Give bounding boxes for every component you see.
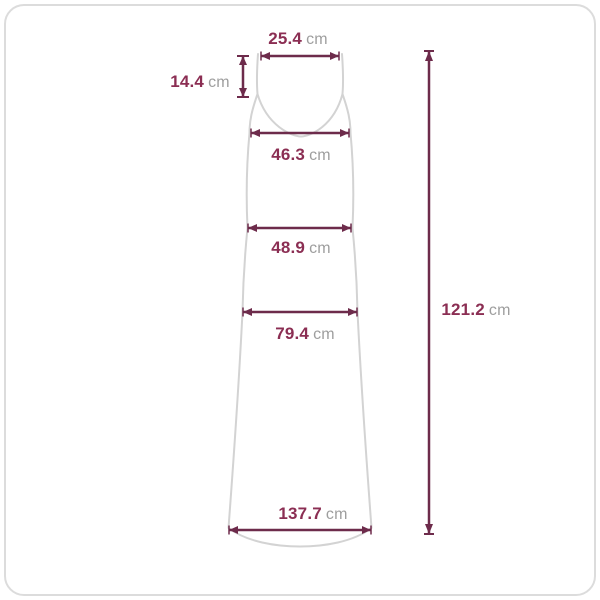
v-neckline xyxy=(258,94,343,137)
hip-width-unit: cm xyxy=(313,326,335,343)
strap-length-label: 14.4cm xyxy=(170,73,230,91)
left-strap xyxy=(257,54,258,94)
garment-outline xyxy=(229,54,372,547)
bust-width-unit: cm xyxy=(309,147,331,164)
bust-width-label: 46.3cm xyxy=(271,146,331,164)
total-length-label: 121.2cm xyxy=(441,301,510,319)
top-width-value: 25.4 xyxy=(268,29,302,48)
waist-width-label: 48.9cm xyxy=(271,239,331,257)
hem-measure-line xyxy=(229,526,371,535)
hem-width-label: 137.7cm xyxy=(278,505,347,523)
hip-width-label: 79.4cm xyxy=(275,325,335,343)
waist-measure-line xyxy=(248,224,351,233)
right-strap xyxy=(342,54,343,94)
hip-width-value: 79.4 xyxy=(275,324,309,343)
hip-measure-line xyxy=(243,308,357,317)
waist-width-value: 48.9 xyxy=(271,238,305,257)
strap-length-unit: cm xyxy=(208,74,230,91)
total-length-measure-line xyxy=(424,51,434,534)
top-width-measure-line xyxy=(261,52,339,61)
dress-measurement-diagram: 25.4cm 14.4cm 46.3cm 48.9cm 79.4cm 137.7… xyxy=(0,0,600,600)
hem-width-unit: cm xyxy=(326,506,348,523)
top-width-label: 25.4cm xyxy=(268,30,328,48)
measurement-lines xyxy=(229,51,434,535)
strap-length-measure-line xyxy=(237,56,249,97)
total-length-value: 121.2 xyxy=(441,300,485,319)
total-length-unit: cm xyxy=(489,302,511,319)
waist-width-unit: cm xyxy=(309,240,331,257)
strap-length-value: 14.4 xyxy=(170,72,204,91)
hem-width-value: 137.7 xyxy=(278,504,322,523)
top-width-unit: cm xyxy=(306,31,328,48)
bust-width-value: 46.3 xyxy=(271,145,305,164)
